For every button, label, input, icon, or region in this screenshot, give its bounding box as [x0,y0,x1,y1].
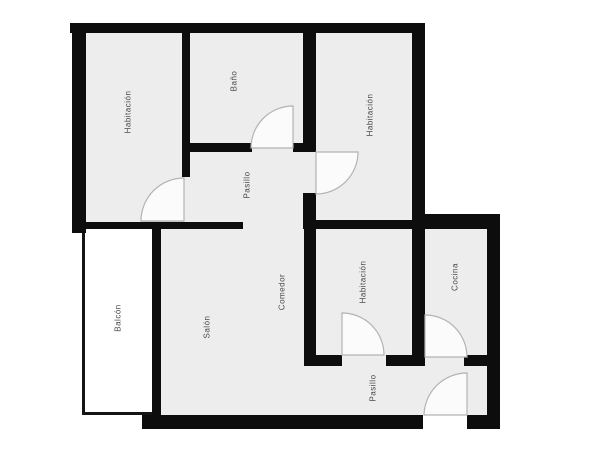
door-swing-kitchen [425,315,467,357]
room-label-habitacion-bottom: Habitación [359,261,368,304]
room-label-bano: Baño [230,71,239,92]
door-swing-bedroom1 [141,178,184,221]
room-label-balcon: Balcón [114,304,123,331]
door-swing-bedroom3 [342,313,384,355]
room-label-pasillo-upper: Pasillo [243,171,252,198]
room-label-cocina: Cocina [451,263,460,291]
door-swing-entrance [424,373,467,415]
door-swing-bedroom2 [316,152,358,194]
floor-plan: Habitación Baño Habitación Pasillo Comed… [0,0,600,450]
room-label-habitacion-top-left: Habitación [124,91,133,134]
door-swing-bathroom [251,106,293,148]
room-label-comedor: Comedor [278,274,287,310]
door-swings-layer [0,0,600,450]
room-label-habitacion-top-right: Habitación [366,94,375,137]
room-label-pasillo-lower: Pasillo [369,374,378,401]
room-label-salon: Salón [203,316,212,339]
